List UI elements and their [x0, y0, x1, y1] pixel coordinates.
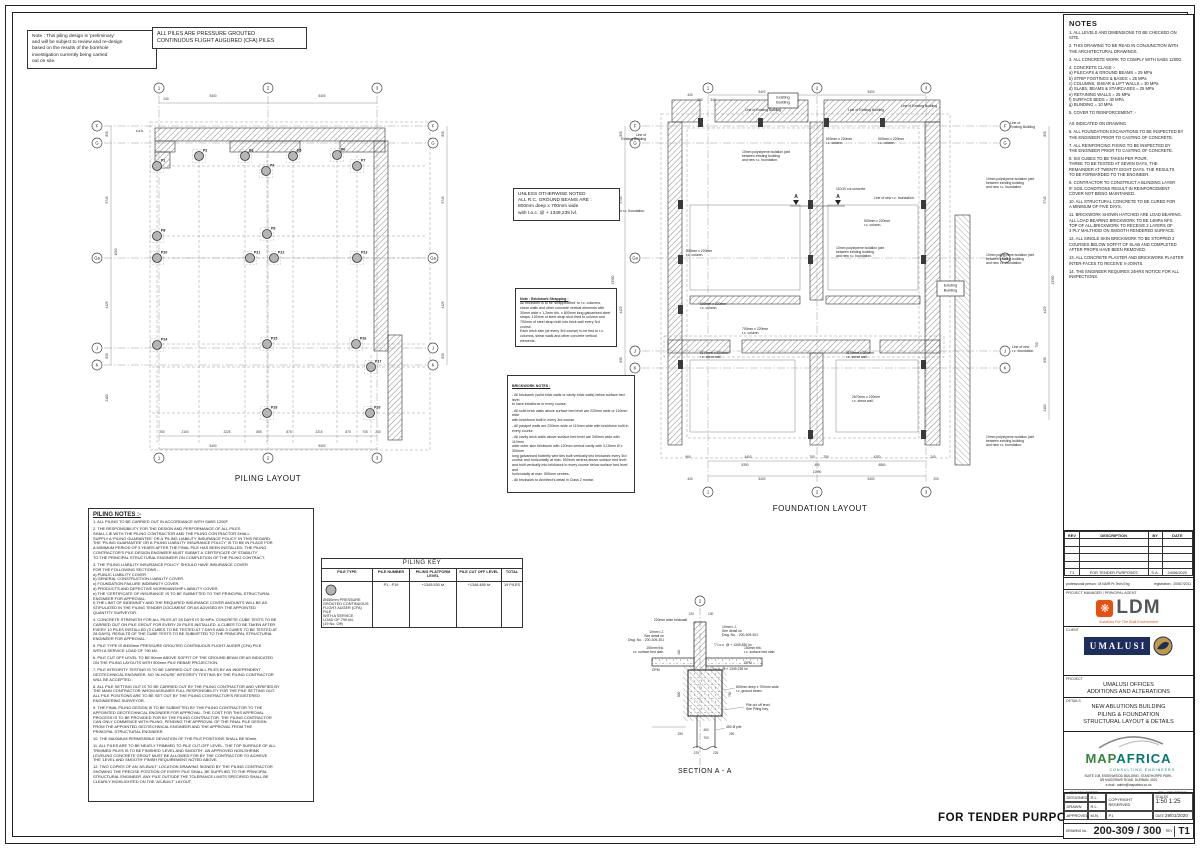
svg-text:220mm wide brickwall.: 220mm wide brickwall. — [654, 618, 688, 622]
svg-text:DPM: DPM — [652, 668, 660, 672]
drawing-number-label: DRAWING No. — [1064, 829, 1089, 833]
client-label: CLIENT — [1064, 627, 1193, 633]
rev-cell: FOR TENDER PURPOSES — [1079, 568, 1148, 575]
svg-text:110/10 c/s concrete: 110/10 c/s concrete — [836, 187, 865, 191]
svg-text:G: G — [95, 141, 98, 146]
svg-text:830: 830 — [441, 353, 445, 359]
svg-text:5400: 5400 — [867, 477, 874, 481]
svg-text:750: 750 — [728, 691, 732, 697]
list-item: 8. ALL PILE SETTING OUT IS TO BE CARRIED… — [93, 685, 309, 704]
brickwork-notes-list: - All brickwork (solid brick walls or ca… — [512, 393, 630, 483]
list-item: 3. THE 'PILING LIABILITY INSURANCE POLIC… — [93, 563, 309, 616]
svg-text:830: 830 — [105, 131, 109, 137]
list-item: 14. THE ENGINEER REQUIRES 24HRS NOTICE F… — [1069, 269, 1188, 280]
piling-layout-title: PILING LAYOUT — [198, 474, 338, 483]
title-block-panel: NOTES 1. ALL LEVELS AND DIMENSIONS TO BE… — [1063, 14, 1194, 839]
svg-text:P1: P1 — [161, 159, 165, 163]
client-box: CLIENT U M A L U S I — [1064, 627, 1193, 676]
project-box: PROJECT UMALUSI OFFICES ADDITIONS AND AL… — [1064, 676, 1193, 698]
svg-text:500mm x 220mmr.c. column.: 500mm x 220mmr.c. column. — [826, 137, 852, 145]
svg-text:P10: P10 — [161, 251, 167, 255]
svg-text:5745: 5745 — [105, 196, 109, 203]
svg-text:ExistingBuilding: ExistingBuilding — [776, 96, 790, 105]
notes-title: NOTES — [1064, 15, 1193, 30]
svg-text:130: 130 — [708, 612, 714, 616]
svg-text:P19: P19 — [374, 406, 380, 410]
svg-text:500mm x 220mmr.c. column.: 500mm x 220mmr.c. column. — [878, 137, 904, 145]
brickwork-strapping-note: Note : Brickwork Strapping : All brickwo… — [515, 288, 617, 347]
svg-text:F: F — [432, 124, 435, 129]
drawing-sheet: 112233FFGGGaGaJJKK2405400540025021002225… — [0, 0, 1200, 849]
svg-text:G: G — [431, 141, 434, 146]
list-item: 1. ALL LEVELS AND DIMENSIONS TO BE CHECK… — [1069, 30, 1188, 41]
svg-text:P16: P16 — [360, 337, 366, 341]
list-item: 6. ALL FOUNDATION EXCAVATIONS TO BE INSP… — [1069, 129, 1188, 140]
piling-notes-list: 1. ALL PILING TO BE CARRIED OUT IN ACCOR… — [93, 520, 309, 785]
foundation-rooms — [690, 205, 918, 432]
svg-text:870: 870 — [345, 430, 351, 434]
umalusi-emblem-icon — [1153, 636, 1173, 656]
list-item: 2. THE RESPONSIBILITY FOR THE DESIGN AND… — [93, 527, 309, 561]
rev-header: DESCRIPTION — [1079, 532, 1148, 539]
designed-value: R.L. — [1088, 793, 1106, 802]
svg-text:K: K — [96, 363, 99, 368]
preliminary-note: Note : This piling design is 'preliminar… — [27, 30, 157, 69]
svg-text:J: J — [1004, 349, 1006, 354]
svg-text:500mm x 220mmr.c. column.: 500mm x 220mmr.c. column. — [700, 302, 726, 310]
svg-text:A: A — [794, 194, 798, 200]
svg-text:10mm I.J.See detail onDwg. No.: 10mm I.J.See detail onDwg. No. : 200-309… — [628, 630, 664, 642]
list-item: - All brickwork (solid brick walls or ca… — [512, 393, 630, 407]
svg-text:F: F — [1004, 124, 1007, 129]
svg-text:2670mm x 220mmr.c. shear wall.: 2670mm x 220mmr.c. shear wall. — [852, 395, 880, 403]
svg-text:P15: P15 — [271, 337, 277, 341]
engineer-email: e-mail : admin@mapafrica.co.za — [1064, 783, 1193, 787]
list-item: 5. PILE TYPE IS Ø450mm PRESSURE GROUTED … — [93, 644, 309, 654]
drawn-value: R.L. — [1088, 802, 1106, 811]
rev-header: REV — [1065, 532, 1080, 539]
svg-text:700mm x 220mmr.c. column.: 700mm x 220mmr.c. column. — [742, 327, 768, 335]
svg-text:1170mm x 220mmr.c. shear wall.: 1170mm x 220mmr.c. shear wall. — [700, 351, 728, 359]
list-item: 7. PILE INTEGRITY TESTING IS TO BE CARRI… — [93, 668, 309, 682]
approved-label: APPROVED — [1064, 811, 1088, 820]
svg-text:4425: 4425 — [105, 301, 109, 308]
svg-text:P9: P9 — [271, 227, 275, 231]
cfa-piles-note: ALL PILES ARE PRESSURE GROUTED CONTINUOU… — [152, 27, 307, 49]
svg-text:P2: P2 — [203, 149, 207, 153]
piling-key-pile-type: Ø450mm PRESSURE GROUTED CONTINUOUS FLIGH… — [323, 598, 371, 626]
svg-text:10mm polystyrene isolation joi: 10mm polystyrene isolation jointbetween … — [836, 246, 884, 258]
rev-value: T1 — [1174, 826, 1193, 837]
piling-key-platform-level: +1349,530 lvl — [410, 582, 457, 628]
svg-text:1050: 1050 — [114, 248, 118, 255]
svg-text:F: F — [96, 124, 99, 129]
svg-text:240: 240 — [375, 430, 381, 434]
svg-text:Ga: Ga — [430, 256, 436, 261]
svg-text:830: 830 — [1043, 357, 1047, 363]
pile-symbol-icon — [323, 583, 339, 597]
svg-text:440: 440 — [687, 477, 693, 481]
ldm-tagline: Solutions For The Built Environment — [1064, 620, 1193, 624]
piling-key-header: PILING PLATFORM LEVEL — [410, 569, 457, 582]
svg-text:700: 700 — [809, 455, 815, 459]
svg-text:P14: P14 — [161, 338, 167, 342]
svg-text:Ga: Ga — [94, 256, 100, 261]
map-wordmark: MAP — [1085, 751, 1116, 766]
revision-table: REVDESCRIPTIONBYDATE T1FOR TENDER PURPOS… — [1064, 531, 1193, 578]
list-item: 11. BRICKWORK SHOWN HATCHED ARE LOAD BEA… — [1069, 212, 1188, 234]
svg-text:500mm x 220mmr.c. column.: 500mm x 220mmr.c. column. — [686, 249, 712, 257]
svg-text:855: 855 — [256, 430, 262, 434]
svg-text:ExistingBuilding: ExistingBuilding — [944, 284, 958, 293]
rev-cell: 24/06/2020 — [1162, 568, 1192, 575]
svg-text:5400: 5400 — [867, 90, 874, 94]
svg-text:250: 250 — [678, 732, 684, 736]
list-item: - All cavity brick walls above surface b… — [512, 435, 630, 477]
ldm-wordmark: LDM — [1116, 597, 1160, 619]
svg-text:225: 225 — [694, 751, 700, 755]
svg-text:960: 960 — [685, 455, 691, 459]
svg-text:5400: 5400 — [209, 94, 216, 98]
svg-text:Line of Existing Building: Line of Existing Building — [745, 108, 781, 112]
list-item: 10. THE MAXIMUM PERMISSIBLE DEVIATION OF… — [93, 737, 309, 742]
svg-text:Line of newr.c. foundation.: Line of newr.c. foundation. — [1012, 345, 1034, 353]
list-item: 13. ALL CONCRETE PLASTER AND BRICKWORK P… — [1069, 255, 1188, 266]
svg-text:K: K — [432, 363, 435, 368]
svg-text:10mm I.J.See detail onDwg. No.: 10mm I.J.See detail onDwg. No. : 200-309… — [722, 625, 758, 637]
svg-text:5860: 5860 — [878, 463, 885, 467]
details-box: DETAILS NEW ABLUTIONS BUILDING PILING & … — [1064, 698, 1193, 732]
list-item: 8. SIX CUBES TO BE TAKEN PER POUR. THREE… — [1069, 156, 1188, 178]
svg-text:2100: 2100 — [105, 394, 109, 401]
svg-text:2100: 2100 — [1043, 404, 1047, 411]
ldm-flower-icon: ❋ — [1096, 600, 1113, 617]
list-item: 10. ALL STRUCTURAL CONCRETE TO BE CURED … — [1069, 199, 1188, 210]
svg-text:100: 100 — [697, 98, 703, 102]
svg-text:Line ofExisting Building: Line ofExisting Building — [1010, 121, 1035, 129]
rev-cell: T1 — [1065, 568, 1080, 575]
svg-text:4425: 4425 — [441, 301, 445, 308]
svg-text:5400: 5400 — [758, 90, 765, 94]
drawing-number: 200-309 / 300 — [1089, 825, 1166, 837]
svg-text:4425: 4425 — [619, 306, 623, 313]
svg-text:150mm thk.r.c. surface bed sla: 150mm thk.r.c. surface bed slab. — [633, 646, 664, 654]
svg-text:10mm polystyrene isolation joi: 10mm polystyrene isolation jointbetween … — [742, 150, 790, 162]
svg-text:P12: P12 — [278, 251, 284, 255]
consulting-engineers-label: CONSULTING ENGINEERS — [1064, 768, 1193, 772]
piling-layout-walls — [155, 128, 402, 440]
svg-text:10mm polystyrene isolation joi: 10mm polystyrene isolation jointbetween … — [986, 435, 1034, 447]
piling-notes: PILING NOTES :- 1. ALL PILING TO BE CARR… — [88, 508, 314, 802]
svg-text:J: J — [634, 349, 636, 354]
foundation-footing-outlines — [661, 114, 950, 458]
svg-text:220: 220 — [689, 612, 695, 616]
piling-key-header: TOTAL — [502, 569, 523, 582]
date-cell: DATE 29/01/2020 — [1153, 811, 1193, 820]
svg-text:830: 830 — [619, 131, 623, 137]
svg-text:830: 830 — [619, 357, 623, 363]
list-item: 6. PILE CUT OFF LEVEL TO BE 50mm ABOVE S… — [93, 656, 309, 666]
umalusi-wordmark: U M A L U S I — [1084, 637, 1151, 655]
rev-cell: S.A. — [1148, 568, 1162, 575]
date-label: DATE — [1156, 814, 1164, 818]
svg-text:F: F — [634, 124, 637, 129]
africa-wordmark: AFRICA — [1116, 751, 1171, 766]
list-item: 9. THE FINAL PILING DESIGN IS TO BE SUBM… — [93, 706, 309, 735]
ldm-logo: ❋ LDM — [1064, 597, 1193, 619]
svg-text:13350: 13350 — [611, 275, 615, 284]
piling-key-header: PILE CUT OFF LEVEL — [457, 569, 502, 582]
svg-text:Line of Existing Building: Line of Existing Building — [848, 108, 884, 112]
svg-text:P8: P8 — [161, 229, 165, 233]
svg-text:10mm polystyrene isolation joi: 10mm polystyrene isolation jointbetween … — [986, 177, 1034, 189]
brickwork-notes: BRICKWORK NOTES : - All brickwork (solid… — [507, 375, 635, 493]
piling-notes-title: PILING NOTES :- — [93, 512, 309, 518]
svg-text:225: 225 — [713, 751, 719, 755]
piling-key-header: PILE TYPE — [322, 569, 373, 582]
svg-text:5400: 5400 — [318, 94, 325, 98]
piling-key-total: 19 PILES — [502, 582, 523, 628]
registration: registration : 20067/2011 — [1154, 582, 1191, 586]
project-name: UMALUSI OFFICES ADDITIONS AND ALTERATION… — [1064, 682, 1193, 697]
svg-text:11090: 11090 — [813, 470, 822, 474]
list-item: 1. ALL PILING TO BE CARRIED OUT IN ACCOR… — [93, 520, 309, 525]
svg-text:250: 250 — [729, 732, 735, 736]
svg-text:J: J — [96, 346, 98, 351]
brickwork-strapping-body: All brickwork is to be 'strapped/tied' t… — [520, 301, 610, 342]
rev-header: BY — [1148, 532, 1162, 539]
svg-text:P18: P18 — [271, 406, 277, 410]
drawn-label: DRAWN — [1064, 802, 1088, 811]
svg-text:A: A — [836, 194, 840, 200]
rev-header: DATE — [1162, 532, 1192, 539]
piling-key-cutoff-level: +1348,485 lvl — [457, 582, 502, 628]
date-value: 29/01/2020 — [1165, 813, 1188, 818]
svg-text:▽ t.o.c. @ + 1349,235 lvl.: ▽ t.o.c. @ + 1349,235 lvl. — [710, 667, 748, 671]
svg-text:J: J — [432, 346, 434, 351]
svg-text:750: 750 — [1035, 342, 1039, 348]
list-item: 7. ALL REINFORCING FIXING TO BE INSPECTE… — [1069, 143, 1188, 154]
svg-text:DPM: DPM — [744, 661, 752, 665]
svg-text:P6: P6 — [341, 148, 345, 152]
foundation-layout-title: FOUNDATION LAYOUT — [750, 504, 890, 513]
svg-text:440: 440 — [687, 93, 693, 97]
mapafrica-swoosh-icon — [1089, 734, 1169, 750]
svg-text:800: 800 — [677, 691, 681, 697]
notes-list: 1. ALL LEVELS AND DIMENSIONS TO BE CHECK… — [1064, 30, 1193, 279]
svg-text:700: 700 — [703, 736, 709, 740]
section-title: SECTION A - A — [640, 768, 770, 775]
svg-text:5745: 5745 — [1043, 196, 1047, 203]
svg-text:150mm thk.r.c. surface bed sla: 150mm thk.r.c. surface bed slab. — [744, 646, 775, 654]
svg-text:4400: 4400 — [744, 455, 751, 459]
svg-text:4250: 4250 — [873, 455, 880, 459]
list-item: 4. CONCRETE CLASS :- a) PILECAPS & GROUN… — [1069, 65, 1188, 108]
signature-block: DESIGNED R.L. COPYRIGHT RESERVED SCALES … — [1064, 793, 1193, 823]
brickwork-strapping-title: Note : Brickwork Strapping : — [520, 297, 569, 301]
list-item: - All parapet walls are 220mm wide or 11… — [512, 424, 630, 433]
svg-text:2215: 2215 — [315, 430, 322, 434]
rev-label: REV — [1166, 829, 1173, 833]
svg-text:500mm x 220mmr.c. column.: 500mm x 220mmr.c. column. — [864, 219, 890, 227]
svg-text:G: G — [1003, 141, 1006, 146]
svg-text:4425: 4425 — [1043, 306, 1047, 313]
project-manager-box: PROJECT MANAGER / PRINCIPAL AGENT ❋ LDM … — [1064, 590, 1193, 627]
svg-text:K: K — [634, 366, 637, 371]
svg-text:10mm polystyrene isolation joi: 10mm polystyrene isolation jointbetween … — [986, 253, 1034, 265]
svg-text:5400: 5400 — [758, 477, 765, 481]
list-item: 12. TWO COPIES OF AN 'AS-BUILT' LOCATION… — [93, 765, 309, 784]
svg-text:705: 705 — [362, 430, 368, 434]
list-item: 4. CONCRETE STRENGTH FOR ALL PILES AT 28… — [93, 618, 309, 642]
ground-beam-note: UNLESS OTHERWISE NOTED ALL R.C. GROUND B… — [513, 188, 620, 221]
scales-value: 1:50 1:25 — [1156, 799, 1181, 805]
drawing-number-box: DRAWING No. 200-309 / 300 REV T1 — [1064, 823, 1193, 838]
mapafrica-logo: MAPAFRICA CONSULTING ENGINEERS — [1064, 734, 1193, 772]
copyright-label: COPYRIGHT RESERVED — [1106, 793, 1153, 811]
svg-text:830: 830 — [105, 353, 109, 359]
list-item: 11. ALL PILES ARE TO BE NEATLY TRIMMED T… — [93, 744, 309, 763]
foundation-layout-walls — [668, 100, 970, 465]
scales-cell: SCALES 1:50 1:25 — [1153, 793, 1193, 811]
svg-text:Line of new r.c. foundation.: Line of new r.c. foundation. — [874, 196, 915, 200]
svg-text:Pile cut off level.See Piling: Pile cut off level.See Piling Key. — [746, 703, 771, 711]
engineer-box: MAPAFRICA CONSULTING ENGINEERS SUITE 108… — [1064, 732, 1193, 793]
svg-text:5390: 5390 — [741, 463, 748, 467]
svg-text:800mm deep x 700mm wider.c. gr: 800mm deep x 700mm wider.c. ground beam. — [736, 685, 779, 693]
pm-label: PROJECT MANAGER / PRINCIPAL AGENT — [1064, 590, 1193, 596]
notes-panel: NOTES 1. ALL LEVELS AND DIMENSIONS TO BE… — [1064, 15, 1193, 531]
svg-text:K: K — [1004, 366, 1007, 371]
designed-label: DESIGNED — [1064, 793, 1088, 802]
svg-text:1170mm x 220mmr.c. shear wall.: 1170mm x 220mmr.c. shear wall. — [846, 351, 874, 359]
list-item: 3. ALL CONCRETE WORK TO COMPLY WITH SABS… — [1069, 57, 1188, 62]
svg-text:5400: 5400 — [318, 444, 325, 448]
list-item: 12. ALL SINGLE SKIN BRICKWORK TO BE STOP… — [1069, 236, 1188, 252]
svg-text:P3: P3 — [249, 149, 253, 153]
piling-key: PILING KEY PILE TYPE PILE NUMBER PILING … — [321, 558, 523, 628]
svg-text:13350: 13350 — [1051, 275, 1055, 284]
svg-text:200: 200 — [933, 477, 939, 481]
svg-text:340: 340 — [710, 98, 716, 102]
piling-key-title: PILING KEY — [322, 559, 523, 569]
svg-text:240: 240 — [930, 455, 936, 459]
svg-text:P4: P4 — [270, 164, 274, 168]
list-item: - All brickwork to Architect's detail in… — [512, 478, 630, 483]
svg-text:5745: 5745 — [441, 196, 445, 203]
svg-text:Ga: Ga — [632, 256, 638, 261]
svg-text:2225: 2225 — [223, 430, 230, 434]
professional-person: professional person : M.NAIR Pr.Tech.Eng — [1066, 582, 1130, 586]
details-text: NEW ABLUTIONS BUILDING PILING & FOUNDATI… — [1064, 704, 1193, 727]
piling-key-pile-number: P1 - P19 — [373, 582, 410, 628]
approved-value: M.N. — [1088, 811, 1106, 820]
piling-key-header: PILE NUMBER — [373, 569, 410, 582]
foundation-dim-lines — [625, 95, 1049, 476]
list-item: 5. COVER TO REINFORCEMENT :- AS INDICATE… — [1069, 110, 1188, 126]
list-item: - All solid brick walls above surface be… — [512, 409, 630, 423]
svg-text:s.s.b.: s.s.b. — [136, 129, 144, 133]
svg-text:250: 250 — [823, 455, 829, 459]
svg-text:250: 250 — [159, 430, 165, 434]
list-item: 2. THIS DRAWING TO BE READ IN CONJUNCTIO… — [1069, 43, 1188, 54]
svg-text:450: 450 — [814, 463, 820, 467]
svg-text:P5: P5 — [297, 149, 301, 153]
professional-person-strip: professional person : M.NAIR Pr.Tech.Eng… — [1064, 578, 1193, 590]
list-item: 9. CONTRACTOR TO CONSTRUCT A BLINDING LA… — [1069, 180, 1188, 196]
svg-text:P11: P11 — [254, 251, 260, 255]
svg-text:830: 830 — [1043, 131, 1047, 137]
pl-cell: P1 — [1106, 811, 1153, 820]
svg-text:P17: P17 — [375, 360, 381, 364]
svg-text:830: 830 — [441, 131, 445, 137]
svg-text:2100: 2100 — [181, 430, 188, 434]
svg-text:P7: P7 — [361, 159, 365, 163]
svg-text:240: 240 — [163, 97, 169, 101]
svg-text:440: 440 — [677, 649, 681, 655]
svg-text:875: 875 — [286, 430, 292, 434]
svg-text:450 Ø pile: 450 Ø pile — [726, 725, 742, 729]
svg-text:5400: 5400 — [209, 444, 216, 448]
svg-text:P13: P13 — [361, 251, 367, 255]
brickwork-notes-title: BRICKWORK NOTES : — [512, 384, 630, 389]
svg-text:G: G — [633, 141, 636, 146]
svg-text:Line of Existing Building: Line of Existing Building — [901, 104, 937, 108]
svg-text:450: 450 — [703, 728, 709, 732]
